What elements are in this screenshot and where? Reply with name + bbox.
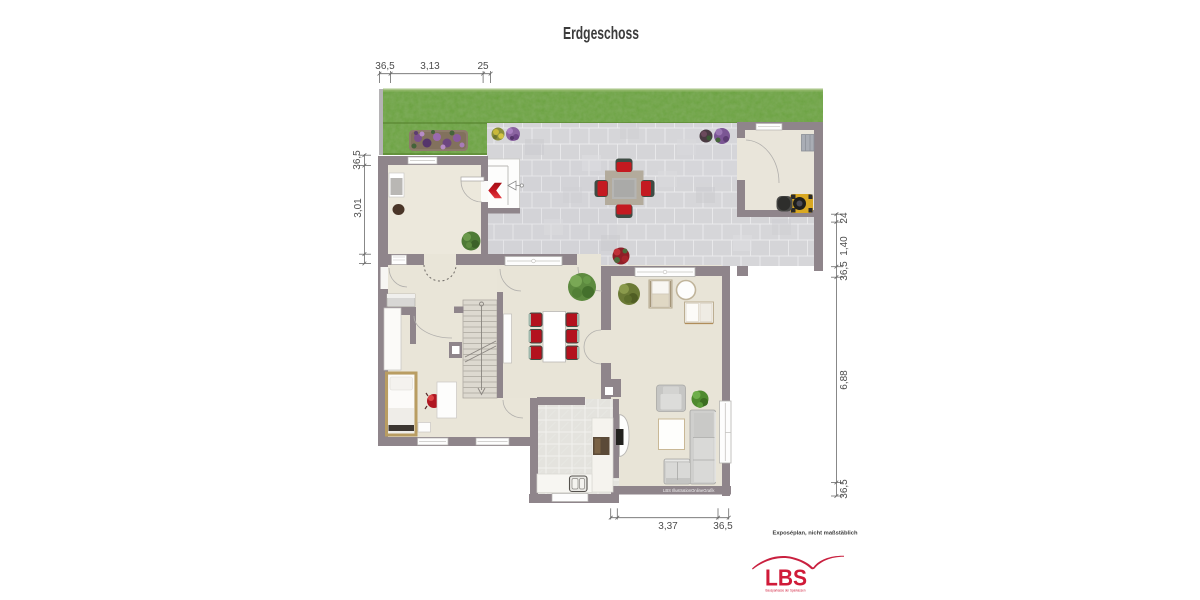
svg-text:24: 24 — [839, 212, 850, 224]
svg-text:3,37: 3,37 — [658, 521, 678, 532]
svg-text:25: 25 — [477, 61, 489, 72]
svg-text:LBS IllustrationOnlineGrafik: LBS IllustrationOnlineGrafik — [663, 488, 715, 493]
svg-text:36,5: 36,5 — [839, 479, 850, 499]
svg-text:36,5: 36,5 — [352, 150, 363, 170]
svg-text:1,40: 1,40 — [839, 236, 850, 256]
svg-text:3,01: 3,01 — [353, 198, 364, 218]
svg-text:3,13: 3,13 — [420, 61, 440, 72]
svg-text:36,5: 36,5 — [839, 261, 850, 281]
svg-text:Bausparkasse der Sparkassen: Bausparkasse der Sparkassen — [766, 588, 806, 593]
svg-text:36,5: 36,5 — [713, 521, 733, 532]
svg-text:Exposéplan, nicht maßstäblich: Exposéplan, nicht maßstäblich — [772, 531, 857, 537]
svg-text:Erdgeschoss: Erdgeschoss — [563, 23, 639, 43]
svg-text:6,88: 6,88 — [839, 370, 850, 390]
svg-text:36,5: 36,5 — [375, 61, 395, 72]
